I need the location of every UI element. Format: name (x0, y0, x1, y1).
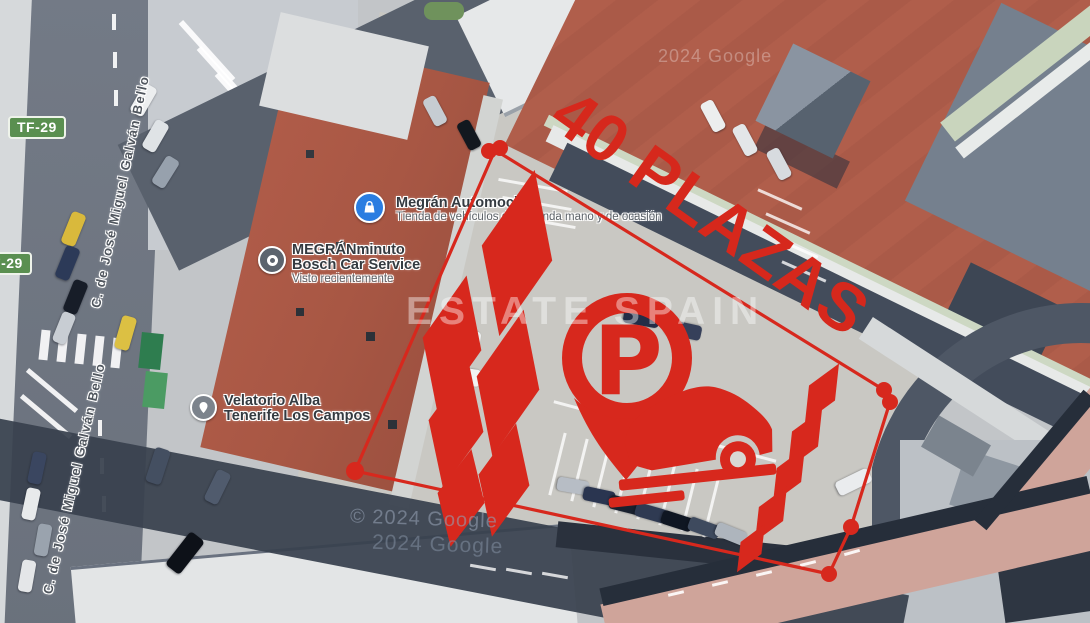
pin-letter: P (593, 307, 663, 417)
polygon-vertex-dot (492, 140, 508, 156)
hazard-diamond (792, 356, 852, 430)
satellite-map[interactable]: TF-29 TF-29 C. de José Miguel Galván Bel… (0, 0, 1090, 623)
polygon-vertex-dot (843, 519, 859, 535)
hazard-diamond (464, 162, 570, 343)
parking-annotation-overlay: P (0, 0, 1090, 623)
polygon-vertex-dot (346, 462, 364, 480)
polygon-vertex-dot (821, 566, 837, 582)
polygon-vertex-dot (882, 394, 898, 410)
